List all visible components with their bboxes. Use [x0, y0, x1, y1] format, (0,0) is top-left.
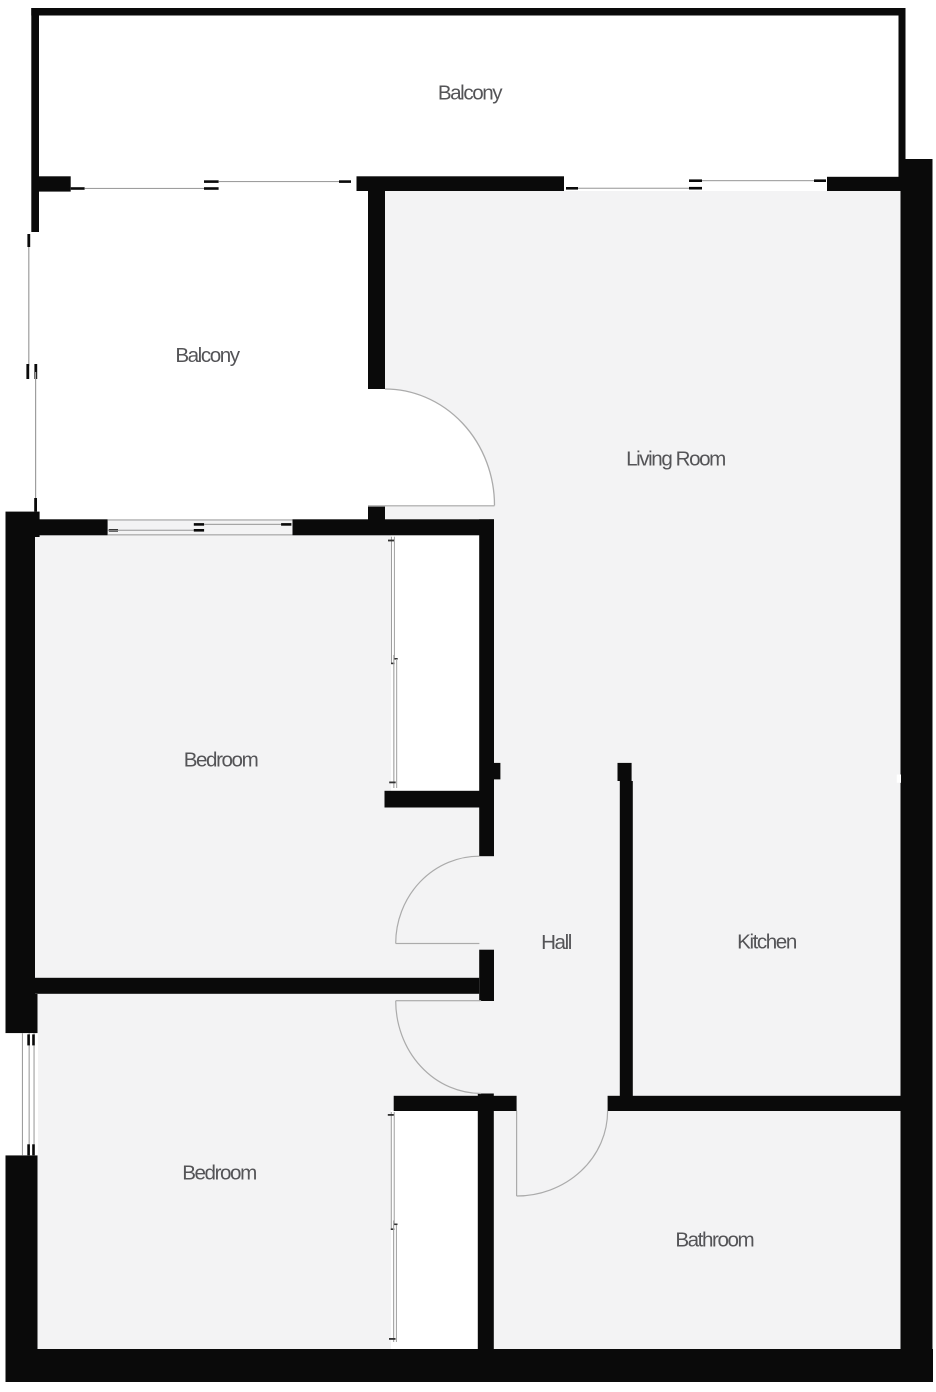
svg-text:Bedroom: Bedroom: [184, 749, 258, 772]
svg-text:Living Room: Living Room: [626, 448, 725, 471]
svg-text:Balcony: Balcony: [438, 81, 503, 104]
svg-text:Hall: Hall: [541, 931, 572, 954]
svg-text:Kitchen: Kitchen: [737, 931, 797, 954]
svg-text:Balcony: Balcony: [175, 344, 240, 367]
svg-text:Bathroom: Bathroom: [675, 1229, 753, 1252]
svg-text:Bedroom: Bedroom: [182, 1161, 256, 1184]
